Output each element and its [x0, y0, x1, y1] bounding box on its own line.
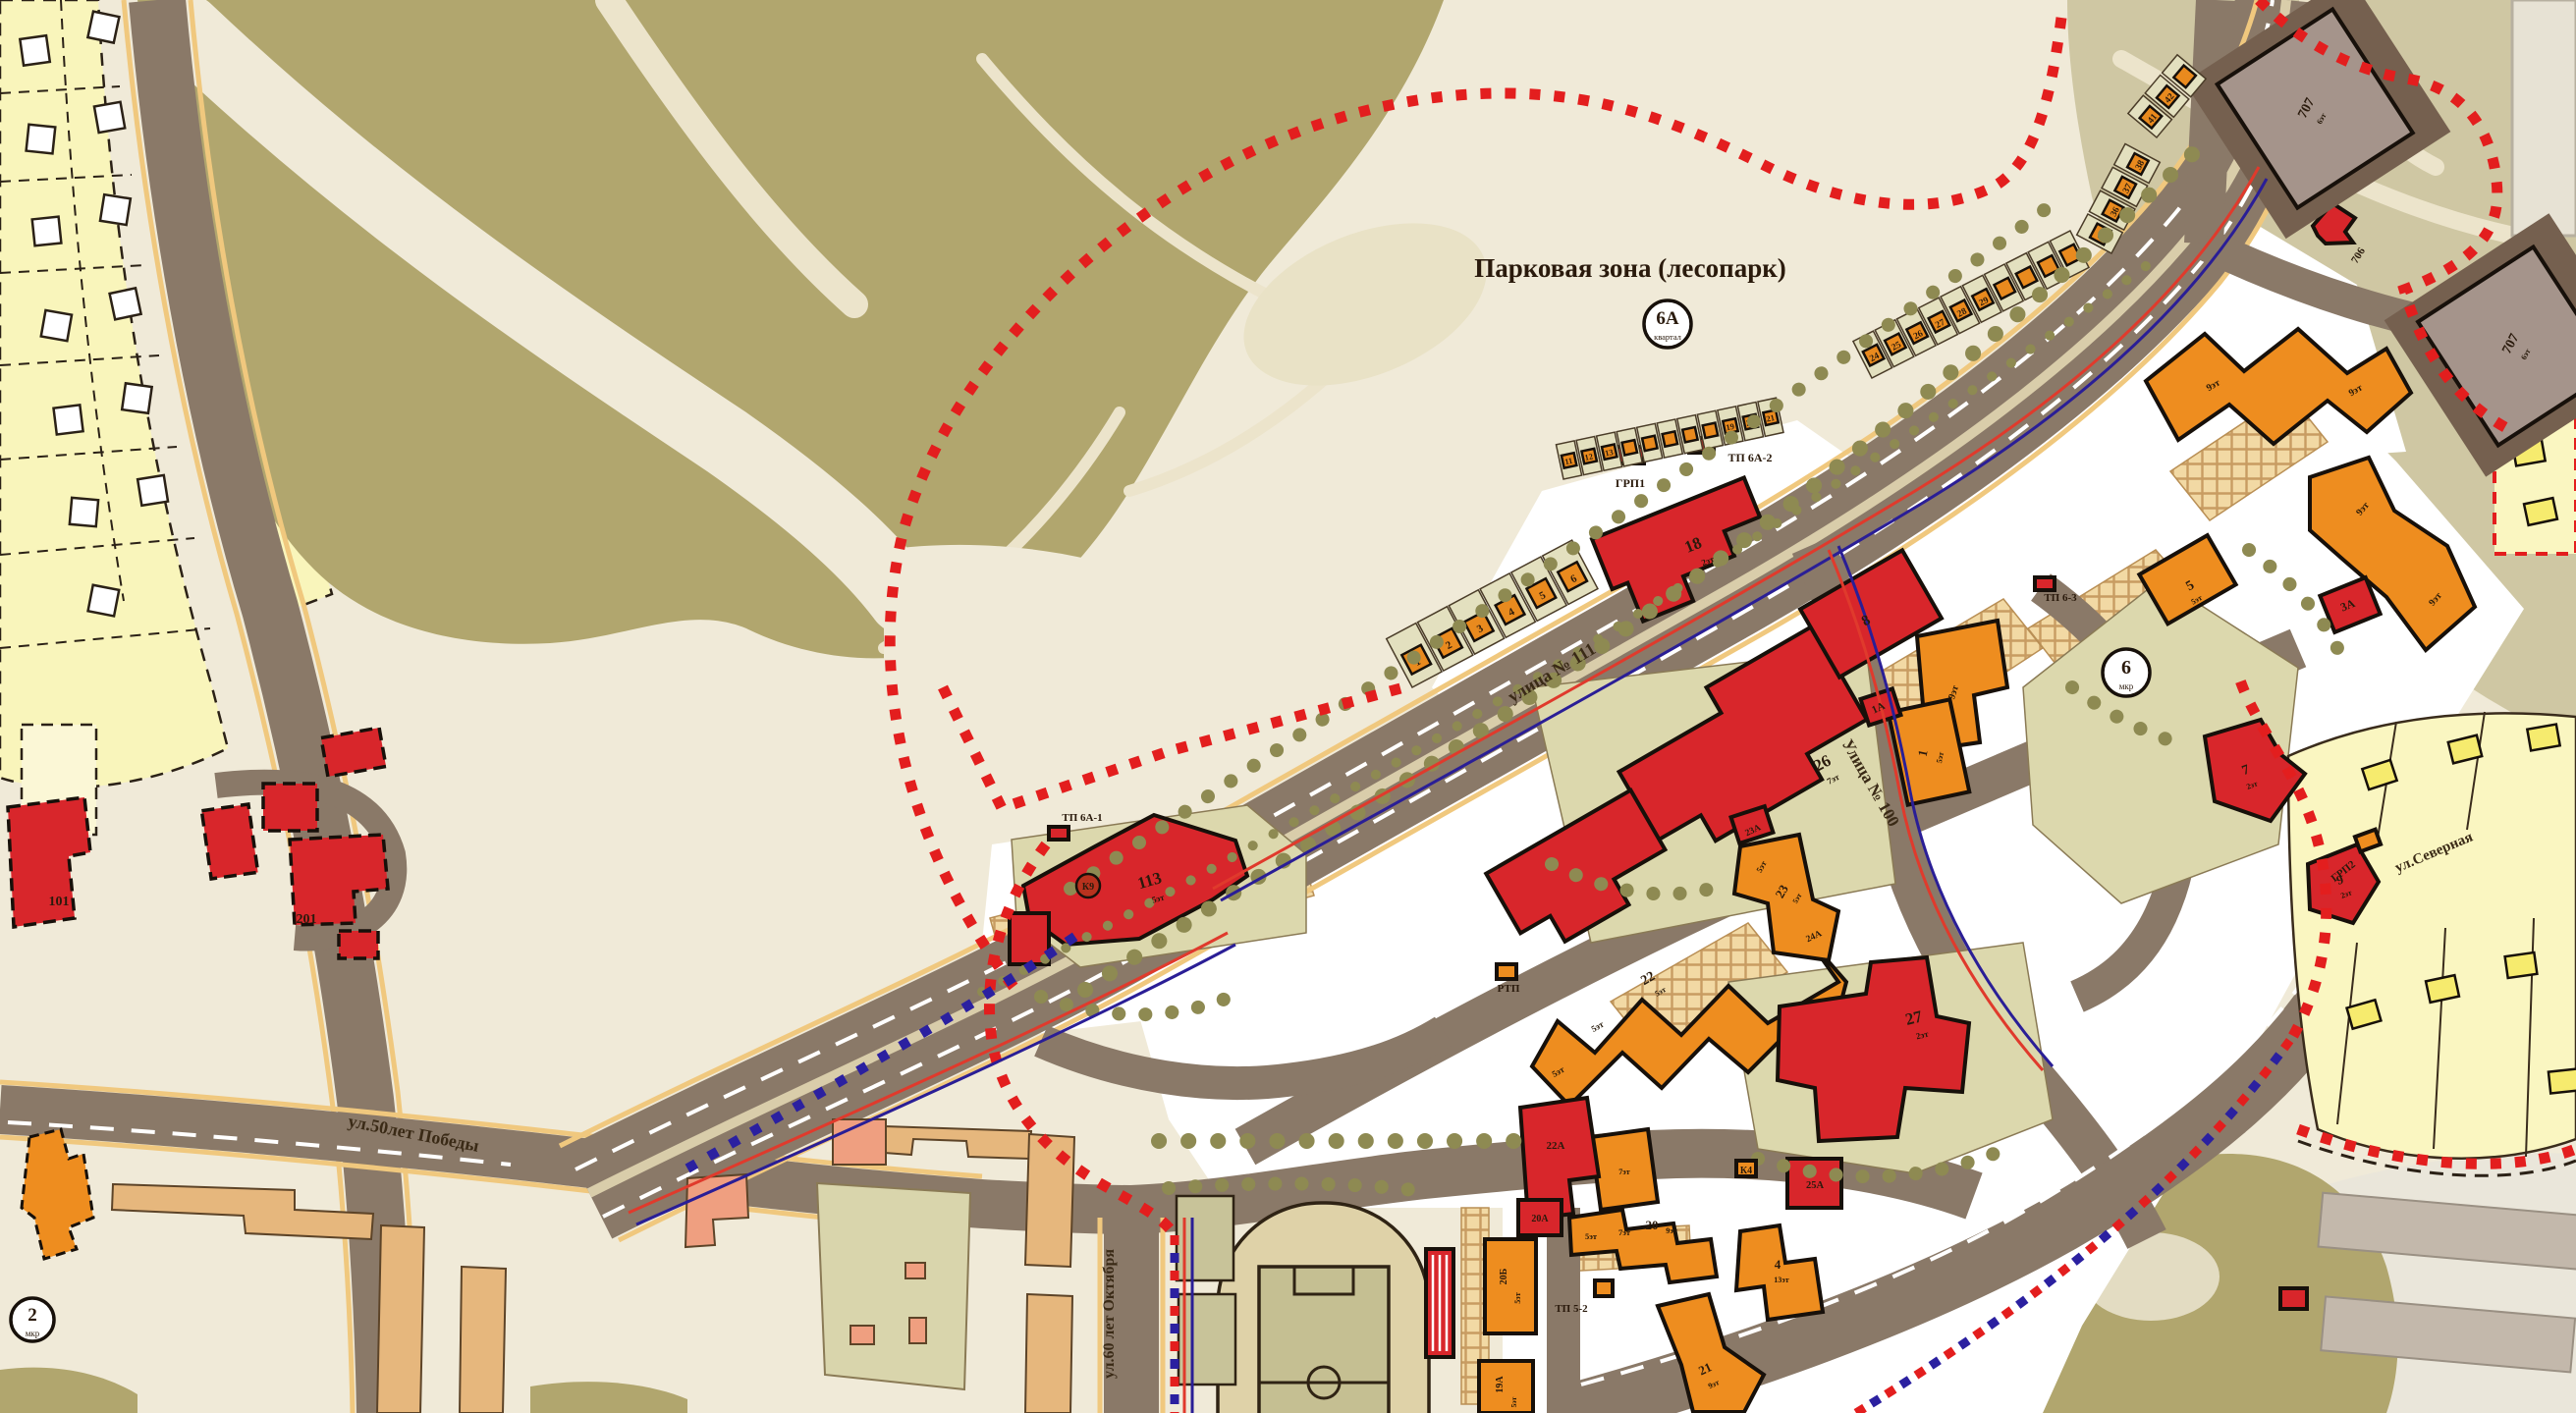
- label-20b-fl: 5эт: [1513, 1292, 1522, 1303]
- label-20: 20: [1646, 1218, 1659, 1232]
- label-tp6a2: ТП 6А-2: [1728, 451, 1773, 464]
- tp52-square: [1595, 1280, 1613, 1296]
- label-tp52: ТП 5-2: [1555, 1303, 1588, 1315]
- badge-k4-label: К4: [1740, 1166, 1752, 1176]
- badge-k9: К9: [1076, 874, 1100, 897]
- slab-20b: [1485, 1239, 1536, 1333]
- badge-2-caption: мкр: [26, 1329, 40, 1338]
- badge-quarter-6a: 6А квартал: [1644, 300, 1691, 348]
- badge-6a-caption: квартал: [1654, 332, 1682, 342]
- street-oktyabrya: ул.60 лет Октября: [1101, 1249, 1118, 1379]
- label-tp6a1: ТП 6А-1: [1062, 812, 1102, 824]
- label-20b: 20Б: [1499, 1268, 1509, 1284]
- badge-6-number: 6: [2121, 657, 2131, 679]
- existing-slab: [1025, 1294, 1072, 1413]
- label-22a: 22А: [1547, 1140, 1565, 1152]
- badge-k9-label: К9: [1082, 882, 1094, 893]
- label-grp1: ГРП1: [1616, 476, 1645, 490]
- label-tp63: ТП 6-3: [2044, 592, 2077, 604]
- existing-slab: [460, 1267, 506, 1413]
- building-201-d: [321, 728, 386, 777]
- badge-k4: К4: [1736, 1161, 1756, 1176]
- label-4: 4: [1775, 1257, 1781, 1272]
- park-zone-label: Парковая зона (лесопарк): [1474, 253, 1786, 283]
- label-20a: 20А: [1531, 1214, 1549, 1224]
- offsite-building: [2512, 0, 2576, 236]
- label-201: 201: [297, 912, 317, 927]
- offsite-red-building: [2280, 1288, 2307, 1309]
- football-field: [1259, 1267, 1389, 1413]
- slab-19a: [1479, 1361, 1533, 1413]
- badge-6a-number: 6А: [1656, 308, 1679, 329]
- label-4-fl: 13эт: [1774, 1276, 1788, 1284]
- rtp-square: [1497, 964, 1516, 979]
- label-5fl: 5эт: [1585, 1231, 1598, 1241]
- badge-mkr-6: 6 мкр: [2103, 649, 2150, 696]
- label-7fl: 7эт: [1618, 1227, 1631, 1237]
- label-101: 101: [49, 895, 70, 909]
- badge-2-number: 2: [27, 1305, 37, 1326]
- label-19a-fl: 5эт: [1509, 1396, 1518, 1407]
- existing-slab: [377, 1225, 424, 1413]
- building-201-a: [201, 804, 257, 879]
- tp6a1-square: [1049, 827, 1069, 840]
- label-22a-fl: 7эт: [1618, 1168, 1629, 1176]
- building-201-c: [339, 931, 378, 958]
- badge-6-caption: мкр: [2119, 681, 2134, 691]
- plot-school-existing: [817, 1183, 970, 1389]
- label-rtp: РТП: [1498, 983, 1520, 995]
- label-19a: 19А: [1495, 1376, 1506, 1393]
- badge-mkr-2: 2 мкр: [11, 1298, 54, 1341]
- label-25a: 25А: [1806, 1180, 1825, 1191]
- masterplan-map: 1 2 3 4 5 6 11 12 13 19 20 21: [0, 0, 2576, 1413]
- tp63-square: [2035, 577, 2055, 590]
- label-20-fl: 9эт: [1666, 1226, 1676, 1235]
- sport-court-2: [1178, 1294, 1235, 1385]
- building-201-b: [263, 784, 317, 831]
